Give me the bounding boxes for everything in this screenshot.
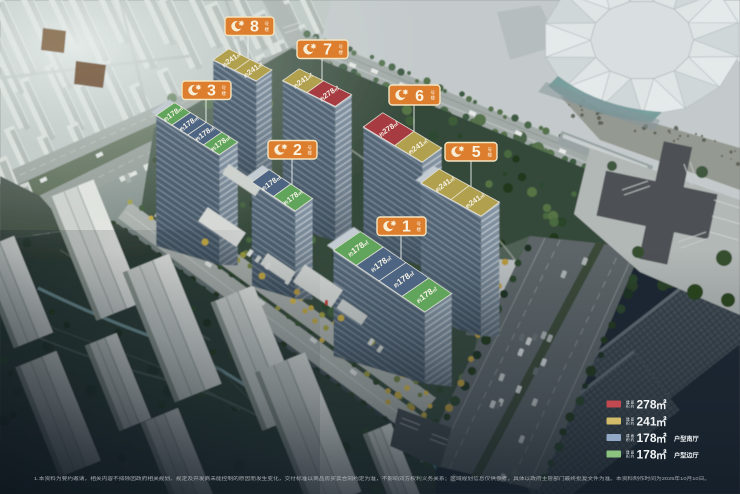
svg-text:278㎡: 278㎡ [637,398,668,412]
svg-text:积 约: 积 约 [626,404,635,409]
svg-text:户型南厅: 户型南厅 [673,435,700,443]
svg-text:178㎡: 178㎡ [637,448,668,462]
svg-text:户型边厅: 户型边厅 [673,452,700,460]
svg-text:8: 8 [250,19,259,36]
svg-text:3: 3 [207,83,216,100]
svg-text:积 约: 积 约 [626,454,635,459]
svg-text:楼: 楼 [308,149,313,156]
svg-text:241㎡: 241㎡ [637,415,668,429]
svg-text:5: 5 [472,144,481,161]
svg-text:楼: 楼 [265,26,270,33]
svg-text:7: 7 [323,42,332,59]
svg-text:积 约: 积 约 [626,437,635,442]
svg-text:178㎡: 178㎡ [637,431,668,445]
svg-text:1.本资料为要约邀请，相关内容不排除因政府相关规划、规定及开: 1.本资料为要约邀请，相关内容不排除因政府相关规划、规定及开发商未能控制的原因而… [34,475,710,482]
svg-text:6: 6 [415,88,424,105]
svg-text:1: 1 [402,219,411,236]
svg-text:楼: 楼 [431,95,436,102]
svg-text:楼: 楼 [339,49,344,56]
svg-text:楼: 楼 [488,151,493,158]
svg-text:楼: 楼 [417,226,422,233]
svg-text:积 约: 积 约 [626,421,635,426]
svg-text:楼: 楼 [222,90,227,97]
svg-text:2: 2 [293,142,302,159]
